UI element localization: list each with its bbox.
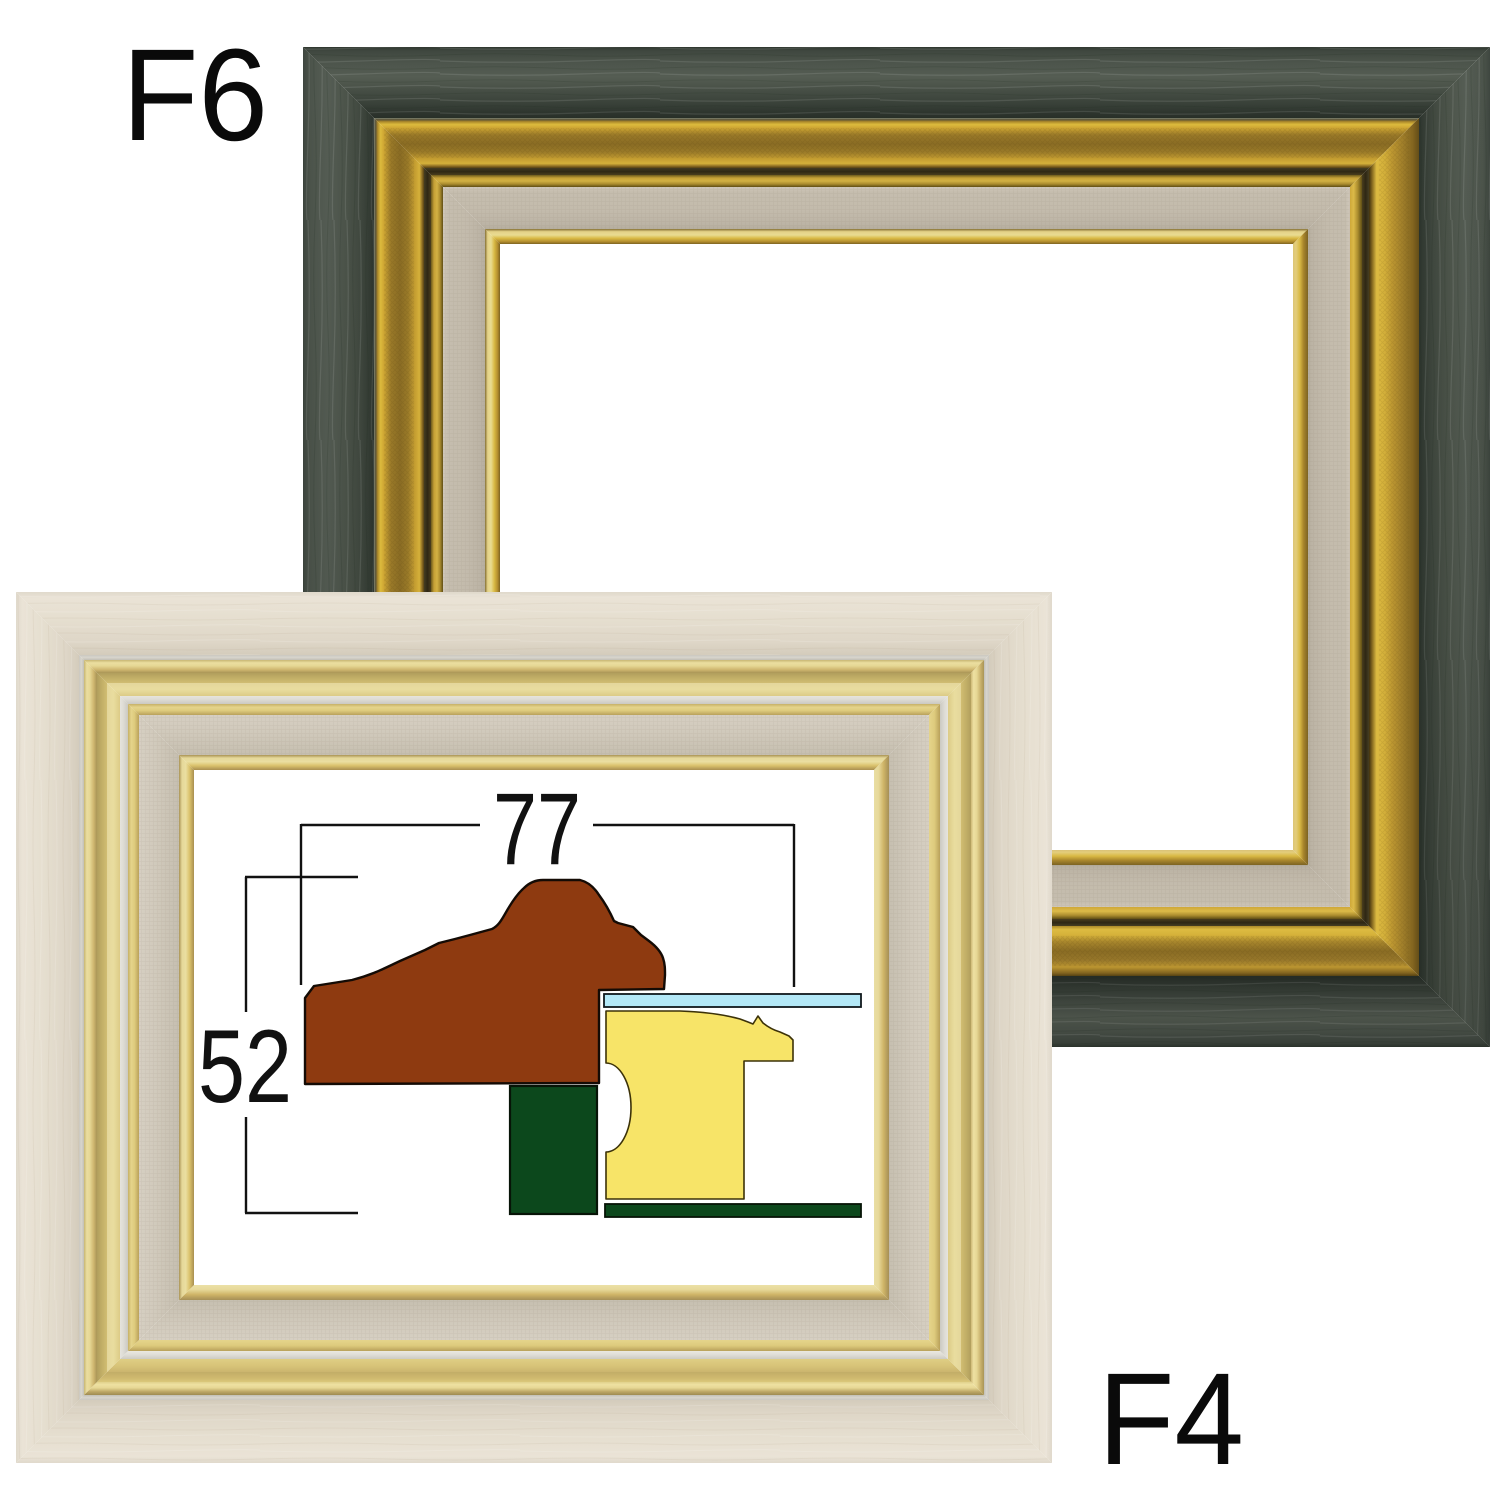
- svg-text:F4: F4: [1098, 1345, 1244, 1492]
- svg-text:52: 52: [198, 1009, 292, 1125]
- svg-text:F6: F6: [122, 21, 268, 168]
- svg-text:77: 77: [493, 772, 581, 886]
